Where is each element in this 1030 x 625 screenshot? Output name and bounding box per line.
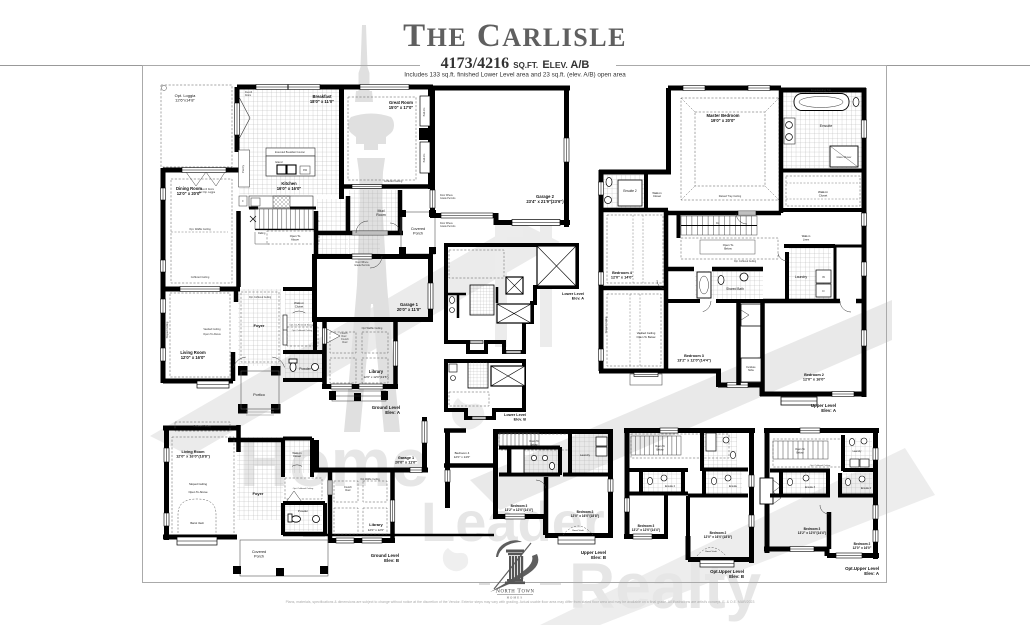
svg-text:Garage 120'0" x 11'0": Garage 120'0" x 11'0": [397, 302, 421, 312]
svg-text:Living Room12'0" x 16'0": Living Room12'0" x 16'0": [180, 350, 206, 360]
svg-text:Sloped Ceiling: Sloped Ceiling: [604, 316, 608, 333]
svg-text:Breakfast18'0" x 11'0": Breakfast18'0" x 11'0": [310, 94, 334, 104]
svg-text:Sloped Ceiling: Sloped Ceiling: [165, 321, 169, 338]
svg-text:Opt. Coffered Ceiling: Opt. Coffered Ceiling: [249, 296, 272, 299]
svg-text:Plans, materials, specificatio: Plans, materials, specifications & dimen…: [286, 600, 755, 604]
svg-text:THE CARLISLE: THE CARLISLE: [403, 18, 627, 54]
svg-text:Raised Tray Ceiling: Raised Tray Ceiling: [719, 194, 742, 198]
svg-text:Powder: Powder: [299, 367, 311, 371]
svg-text:Railing: Railing: [258, 232, 266, 235]
svg-text:Grade Permits: Grade Permits: [440, 197, 456, 200]
svg-text:Island: Island: [275, 160, 283, 164]
svg-text:Opt Waffle Ceiling: Opt Waffle Ceiling: [360, 478, 380, 481]
svg-text:HOMES: HOMES: [507, 596, 524, 600]
svg-text:Vaulted Ceiling: Vaulted Ceiling: [203, 327, 221, 331]
svg-text:Master Bedroom19'0" x 20'0": Master Bedroom19'0" x 20'0": [706, 113, 739, 123]
svg-text:Freestanding Tub: Freestanding Tub: [811, 88, 832, 92]
svg-text:For Opt. Loggia: For Opt. Loggia: [199, 191, 216, 194]
svg-text:Garage 120'0" x 11'0": Garage 120'0" x 11'0": [395, 456, 417, 464]
svg-text:Opt. Coffered Ceiling: Opt. Coffered Ceiling: [810, 464, 831, 467]
svg-text:Vaulted CeilingOpen To Below: Vaulted CeilingOpen To Below: [637, 331, 657, 339]
svg-text:Grade Permits: Grade Permits: [440, 225, 456, 228]
svg-text:Glass Shower: Glass Shower: [837, 156, 852, 159]
svg-text:Opt. Coffered Ceiling: Opt. Coffered Ceiling: [292, 329, 313, 332]
svg-text:Includes 133 sq.ft. finished L: Includes 133 sq.ft. finished Lower Level…: [404, 72, 626, 79]
svg-text:Ensuite 2: Ensuite 2: [623, 189, 637, 193]
svg-text:Grade Permits: Grade Permits: [354, 264, 370, 267]
svg-text:Bedroom 212'0" x 16'0": Bedroom 212'0" x 16'0": [803, 373, 825, 381]
svg-text:Shared Bath: Shared Bath: [726, 287, 744, 291]
svg-text:Bedroom 412'0" x 14'0": Bedroom 412'0" x 14'0": [454, 451, 470, 459]
svg-text:Library: Library: [369, 369, 384, 374]
svg-text:Walk-InCloset: Walk-InCloset: [818, 190, 828, 197]
svg-text:Pantry: Pantry: [241, 164, 245, 173]
svg-text:Barrel Vault: Barrel Vault: [705, 550, 717, 553]
svg-text:Ensuite: Ensuite: [820, 124, 833, 128]
svg-text:Portico: Portico: [253, 393, 265, 397]
svg-text:Bedroom 212'0" x 16'0": Bedroom 212'0" x 16'0": [853, 542, 872, 550]
svg-text:Walk-inCloset: Walk-inCloset: [292, 451, 302, 458]
svg-text:12'0" x 12'0"(13'6"): 12'0" x 12'0"(13'6"): [363, 375, 388, 379]
svg-text:Barrel Vault: Barrel Vault: [190, 521, 204, 525]
svg-text:Opt. Un-Finished Storage: Opt. Un-Finished Storage: [290, 324, 316, 327]
svg-text:Built-Ins: Built-Ins: [423, 107, 426, 116]
svg-text:MudRoom: MudRoom: [376, 209, 386, 217]
svg-text:Laundry: Laundry: [853, 450, 862, 453]
svg-text:Door: Door: [342, 341, 347, 344]
svg-text:Walk-inCloset: Walk-inCloset: [652, 191, 662, 198]
svg-text:Walk-inCloset: Walk-inCloset: [294, 301, 304, 308]
svg-text:French: French: [340, 332, 348, 335]
svg-text:Coffered Ceiling: Coffered Ceiling: [191, 275, 210, 279]
svg-text:Ensuite: Ensuite: [729, 485, 738, 488]
svg-text:Ensuite 3: Ensuite 3: [805, 486, 816, 489]
svg-text:Opt. Coffered Ceiling: Opt. Coffered Ceiling: [293, 487, 314, 490]
svg-text:Library: Library: [369, 522, 383, 527]
svg-text:Open To Above: Open To Above: [203, 332, 221, 336]
svg-text:12'0" x 12'0": 12'0" x 12'0": [368, 528, 384, 532]
svg-text:Laundry: Laundry: [795, 275, 808, 279]
svg-text:Foyer: Foyer: [253, 491, 264, 496]
svg-text:Dining Room12'0" x 20'0": Dining Room12'0" x 20'0": [176, 186, 202, 196]
svg-text:Opt Waffle Ceiling: Opt Waffle Ceiling: [362, 326, 383, 330]
svg-text:Opt. Coffered Ceiling: Opt. Coffered Ceiling: [734, 260, 757, 263]
svg-text:Foyer: Foyer: [254, 323, 265, 328]
svg-text:Opt. Waffle Ceiling: Opt. Waffle Ceiling: [189, 227, 211, 231]
svg-text:Doors: Doors: [245, 94, 252, 97]
svg-text:Bedroom 412'0" x 14'0": Bedroom 412'0" x 14'0": [611, 271, 633, 279]
svg-text:W: W: [822, 275, 825, 279]
svg-text:Laundry: Laundry: [580, 453, 591, 457]
svg-text:Extended Breakfast Counter: Extended Breakfast Counter: [275, 151, 305, 154]
svg-text:NORTH TOWN: NORTH TOWN: [496, 588, 535, 595]
svg-text:Coffered Ceiling: Coffered Ceiling: [384, 179, 403, 183]
svg-text:Great Room15'0" x 17'0": Great Room15'0" x 17'0": [389, 100, 414, 110]
svg-text:French Doors: French Doors: [200, 188, 215, 191]
svg-text:Coffered Ceiling: Coffered Ceiling: [193, 425, 211, 428]
svg-text:Barrel Vault: Barrel Vault: [572, 529, 584, 532]
svg-text:Ensuite 2: Ensuite 2: [861, 487, 872, 490]
svg-text:Powder: Powder: [298, 509, 308, 513]
svg-text:Opt. Loggia12'6"x14'8": Opt. Loggia12'6"x14'8": [175, 93, 196, 103]
svg-text:Ensuite 2: Ensuite 2: [665, 485, 676, 488]
svg-text:French: French: [245, 91, 253, 94]
svg-text:Built-Ins: Built-Ins: [423, 153, 426, 162]
